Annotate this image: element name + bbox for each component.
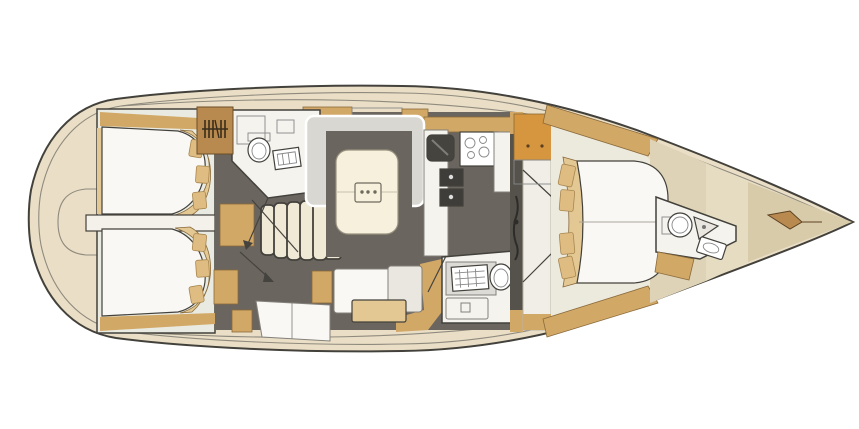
- stair-step: [274, 203, 288, 258]
- toilet-icon: [490, 264, 512, 290]
- hanging-locker-box: [197, 107, 233, 154]
- fridge-handle-icon: [449, 195, 453, 199]
- pillow: [192, 233, 207, 251]
- bed-port-aft: [102, 127, 205, 214]
- fridge-handle-icon: [449, 175, 453, 179]
- hanging-locker: [197, 107, 233, 154]
- side-cabinet: [312, 271, 332, 303]
- locker-small: [232, 310, 252, 332]
- stair-step: [287, 202, 301, 260]
- basin-frame: [273, 147, 301, 169]
- pillow: [195, 260, 209, 278]
- pillow: [189, 285, 205, 304]
- inlay-dot: [373, 190, 376, 193]
- yacht-layout-plan: [0, 0, 859, 429]
- washbasin-icon: [273, 147, 301, 169]
- shower-tray: [446, 298, 488, 319]
- toilet-icon: [248, 138, 270, 162]
- locker-knob-icon: [540, 144, 543, 147]
- faucet-icon: [702, 225, 706, 229]
- aft-cabins: [86, 109, 215, 333]
- washbasin-icon: [451, 265, 489, 291]
- inlay-dot: [366, 190, 369, 193]
- pillow: [559, 232, 575, 254]
- locker-knob-icon: [526, 144, 529, 147]
- engine-box-locker: [220, 204, 254, 246]
- pillow: [195, 166, 209, 184]
- locker-aft-stbd: [214, 270, 238, 304]
- coffee-table: [352, 300, 406, 322]
- bulkhead-cap: [510, 310, 523, 332]
- pillow: [559, 189, 575, 211]
- mast-foot: [514, 220, 519, 225]
- stair-step: [313, 201, 327, 260]
- pillow: [192, 191, 207, 209]
- inlay-dot: [360, 190, 363, 193]
- bed-starboard-aft: [102, 229, 205, 316]
- chaise-seat: [256, 301, 330, 341]
- stair-step: [300, 201, 314, 260]
- plan-canvas: [0, 0, 859, 429]
- head-starboard: [442, 251, 514, 323]
- stove: [460, 132, 498, 166]
